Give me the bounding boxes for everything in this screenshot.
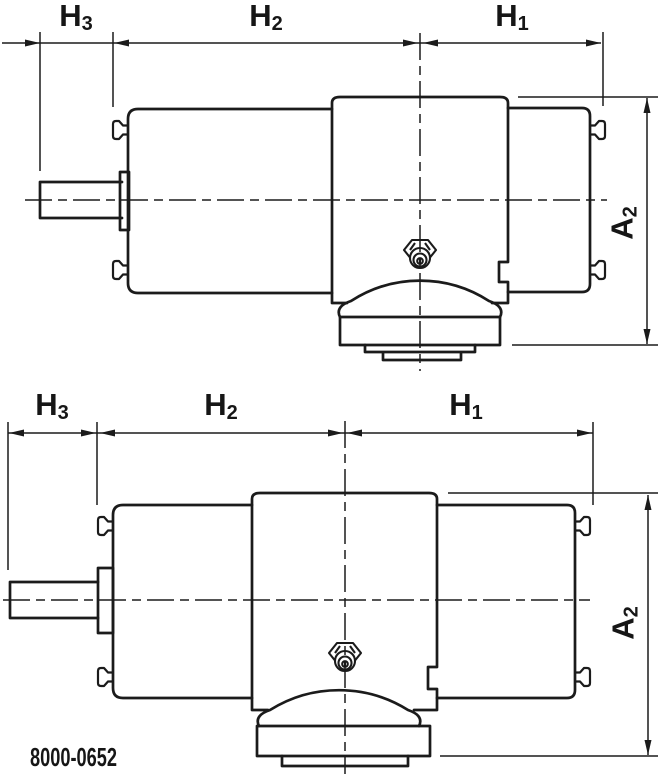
end-housing xyxy=(437,505,575,698)
dim-label-sub: 3 xyxy=(82,13,93,35)
dim-label-a2-top: A2 xyxy=(607,206,638,240)
top-view xyxy=(2,32,658,371)
arrowhead xyxy=(645,495,652,510)
dim-label-sub: 2 xyxy=(621,606,643,617)
arrowhead xyxy=(328,430,343,437)
dim-label-sub: 1 xyxy=(518,13,529,35)
arrowhead xyxy=(9,430,24,437)
arrowhead xyxy=(645,740,652,755)
arrowhead xyxy=(347,430,362,437)
dim-label-base: H xyxy=(249,0,271,33)
arrowhead xyxy=(114,40,129,47)
mounting-stud xyxy=(575,517,590,535)
bottom-dimension-annotations xyxy=(8,422,658,756)
arrowhead xyxy=(81,430,96,437)
dim-label-base: H xyxy=(449,387,471,422)
dim-label-base: H xyxy=(59,0,81,33)
dim-label-sub: 3 xyxy=(58,402,69,424)
figure-code: 8000-0652 xyxy=(30,742,117,773)
dim-label-h3-top: H3 xyxy=(59,0,93,34)
dim-label-sub: 2 xyxy=(272,13,283,35)
mounting-stud xyxy=(98,668,113,686)
arrowhead xyxy=(25,40,40,47)
dim-label-h2-top: H2 xyxy=(249,0,283,34)
arrowhead xyxy=(644,98,651,113)
dim-label-h2-bottom: H2 xyxy=(204,387,238,423)
dim-label-base: H xyxy=(204,387,226,422)
dim-label-base: A xyxy=(605,217,640,239)
dim-label-base: H xyxy=(495,0,517,33)
base-plate xyxy=(257,726,430,756)
arrowhead xyxy=(577,430,592,437)
top-machine-outline xyxy=(40,97,605,360)
arrowhead xyxy=(644,329,651,344)
mounting-stud xyxy=(98,517,113,535)
bottom-center-lines xyxy=(3,421,590,774)
bottom-view xyxy=(3,421,658,774)
mounting-stud xyxy=(590,121,605,139)
motor-housing xyxy=(128,109,332,293)
dim-label-h1-bottom: H1 xyxy=(449,387,483,423)
top-dimension-annotations xyxy=(2,32,658,345)
dim-label-a2-bottom: A2 xyxy=(608,606,639,640)
arrowhead xyxy=(403,40,418,47)
drawing-linework xyxy=(0,0,660,778)
dimension-drawing: H3 H2 H1 A2 H3 H2 H1 A2 8000-0652 xyxy=(0,0,660,778)
mounting-stud xyxy=(575,668,590,686)
bottom-machine-outline xyxy=(10,493,590,766)
pump-dome xyxy=(258,690,421,726)
dim-label-base: A xyxy=(606,617,641,639)
mounting-stud xyxy=(113,261,128,279)
arrowhead xyxy=(100,430,115,437)
dim-label-sub: 2 xyxy=(620,206,642,217)
dim-label-base: H xyxy=(35,387,57,422)
arrowhead xyxy=(423,40,438,47)
arrowhead xyxy=(586,40,601,47)
dim-label-sub: 1 xyxy=(472,402,483,424)
dim-label-h3-bottom: H3 xyxy=(35,387,69,423)
mounting-stud xyxy=(113,121,128,139)
dim-label-h1-top: H1 xyxy=(495,0,529,34)
mounting-stud xyxy=(590,261,605,279)
dim-label-sub: 2 xyxy=(227,402,238,424)
motor-housing xyxy=(113,505,252,698)
